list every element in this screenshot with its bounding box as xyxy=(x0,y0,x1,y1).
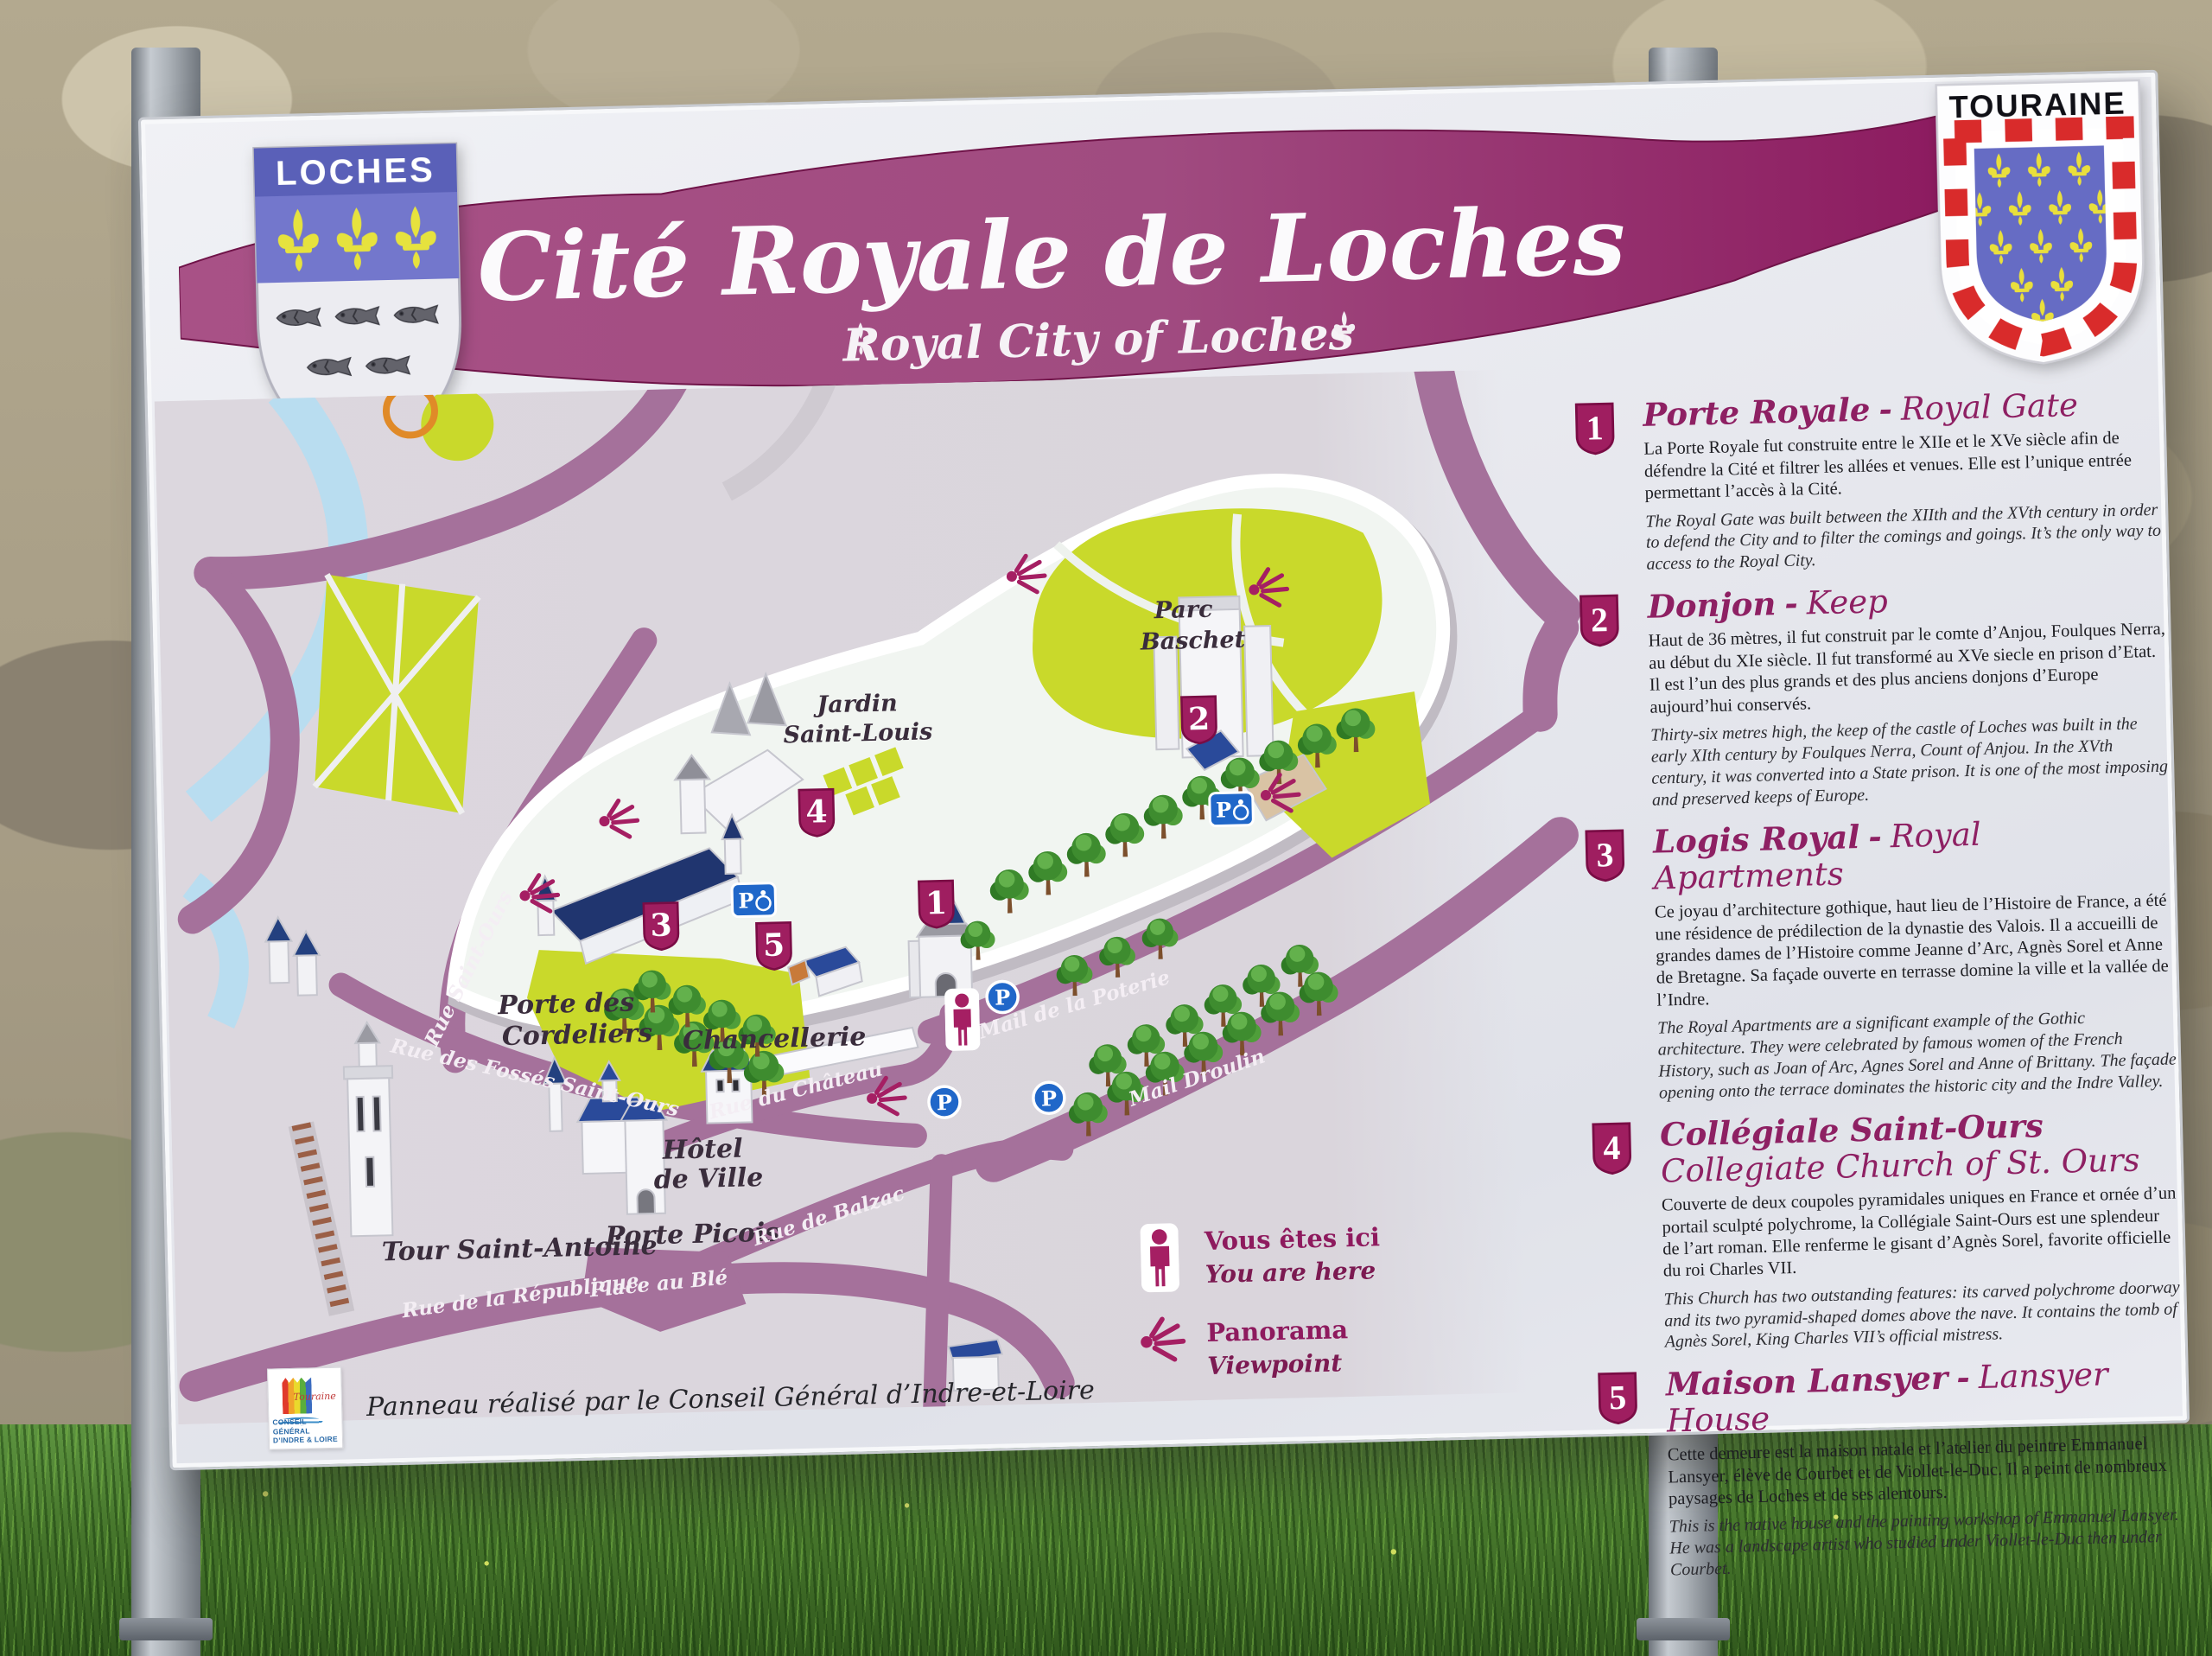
photo-scene: Cité Royale de Loches Royal City of Loch… xyxy=(0,0,2212,1656)
legend-pano-en: Viewpoint xyxy=(1207,1348,1343,1380)
svg-text:2: 2 xyxy=(1188,701,1211,738)
legend-here-en: You are here xyxy=(1205,1256,1376,1289)
touraine-label: TOURAINE xyxy=(1948,86,2126,125)
section-badge-5: 5 xyxy=(1595,1370,1641,1426)
svg-text:1: 1 xyxy=(1586,409,1604,447)
section-text-en: This Church has two outstanding features… xyxy=(1663,1277,2183,1353)
legend-you-are-here-icon xyxy=(1140,1223,1179,1292)
section-badge-4: 4 xyxy=(1589,1120,1635,1176)
section-heading: Collégiale Saint-OursCollegiate Church o… xyxy=(1660,1105,2180,1189)
section-text-fr: Couverte de deux coupoles pyramidales un… xyxy=(1662,1183,2182,1283)
map-label-jardin: Jardin xyxy=(812,690,898,718)
svg-text:5: 5 xyxy=(1609,1379,1627,1417)
section-badge-2: 2 xyxy=(1576,592,1622,648)
you-are-here-icon xyxy=(944,988,981,1051)
section-porte-royale: 1 Porte Royale-Royal Gate La Porte Royal… xyxy=(1567,385,2165,577)
section-text-en: This is the native house and the paintin… xyxy=(1669,1505,2190,1582)
svg-text:Cordeliers: Cordeliers xyxy=(501,1018,652,1052)
section-badge-1: 1 xyxy=(1572,400,1618,456)
svg-text:3: 3 xyxy=(1596,836,1614,874)
tourist-sign-panel: Cité Royale de Loches Royal City of Loch… xyxy=(138,70,2190,1471)
conseil-general-logo: Touraine CONSEIL GÉNÉRAL D’INDRE & LOIRE xyxy=(267,1367,343,1450)
map-label-porte-cordeliers: Porte des xyxy=(497,988,635,1022)
loches-label: LOCHES xyxy=(276,151,436,193)
section-donjon: 2 Donjon-Keep Haut de 36 mètres, il fut … xyxy=(1571,577,2171,812)
parking-icon: P xyxy=(987,981,1019,1013)
section-text-en: The Royal Gate was built between the XII… xyxy=(1645,499,2165,576)
svg-text:3: 3 xyxy=(650,907,672,944)
svg-text:1: 1 xyxy=(925,885,948,922)
section-text-fr: La Porte Royale fut construite entre le … xyxy=(1643,427,2164,505)
svg-text:Saint-Louis: Saint-Louis xyxy=(783,718,932,748)
city-map: P P P P P xyxy=(155,368,1599,1424)
touraine-coat-of-arms: TOURAINE xyxy=(1930,74,2151,368)
section-maison-lansyer: 5 Maison Lansyer-Lansyer House Cette dem… xyxy=(1589,1355,2189,1583)
credit-line: Panneau réalisé par le Conseil Général d… xyxy=(366,1375,1095,1423)
map-label-hotel-de-ville: Hôtel xyxy=(661,1134,743,1166)
section-text-fr: Cette demeure est la maison natale et l’… xyxy=(1668,1433,2188,1511)
section-badge-3: 3 xyxy=(1582,827,1628,883)
marker-4: 4 xyxy=(799,789,835,837)
marker-3: 3 xyxy=(644,902,679,950)
svg-text:4: 4 xyxy=(805,793,828,831)
svg-text:2: 2 xyxy=(1591,601,1609,639)
svg-text:P: P xyxy=(738,888,754,913)
svg-text:P: P xyxy=(1041,1086,1058,1111)
marker-1: 1 xyxy=(918,881,954,928)
section-heading: Porte Royale-Royal Gate xyxy=(1643,385,2162,434)
svg-text:4: 4 xyxy=(1603,1129,1621,1167)
svg-text:Baschet: Baschet xyxy=(1140,627,1246,656)
section-text-en: Thirty-six metres high, the keep of the … xyxy=(1650,713,2171,811)
section-logis-royal: 3 Logis Royal-Royal Apartments Ce joyau … xyxy=(1577,812,2177,1105)
accessible-parking-icon: P xyxy=(1210,793,1254,826)
accessible-parking-icon: P xyxy=(732,883,776,917)
section-heading: Logis Royal-Royal Apartments xyxy=(1653,812,2173,896)
legend-pano-fr: Panorama xyxy=(1206,1315,1349,1347)
svg-text:de Ville: de Ville xyxy=(653,1162,763,1195)
section-heading: Maison Lansyer-Lansyer House xyxy=(1665,1355,2185,1439)
svg-text:P: P xyxy=(937,1090,953,1115)
svg-text:P: P xyxy=(995,984,1011,1010)
parking-icon: P xyxy=(929,1086,961,1118)
section-collegiale: 4 Collégiale Saint-OursCollegiate Church… xyxy=(1584,1105,2183,1355)
section-heading: Donjon-Keep xyxy=(1647,577,2166,626)
legend-here-fr: Vous êtes ici xyxy=(1203,1222,1380,1256)
section-text-fr: Ce joyau d’architecture gothique, haut l… xyxy=(1655,890,2176,1012)
info-column: 1 Porte Royale-Royal Gate La Porte Royal… xyxy=(1567,385,2189,1597)
map-label-chancellerie: Chancellerie xyxy=(683,1022,867,1056)
map-label-parc-baschet: Parc xyxy=(1153,596,1212,625)
section-text-en: The Royal Apartments are a significant e… xyxy=(1657,1006,2177,1104)
parking-icon: P xyxy=(1033,1082,1065,1114)
svg-text:P: P xyxy=(1216,797,1232,822)
section-text-fr: Haut de 36 mètres, il fut construit par … xyxy=(1648,619,2168,719)
marker-5: 5 xyxy=(756,922,791,970)
svg-text:5: 5 xyxy=(763,927,785,964)
marker-2: 2 xyxy=(1181,697,1217,744)
